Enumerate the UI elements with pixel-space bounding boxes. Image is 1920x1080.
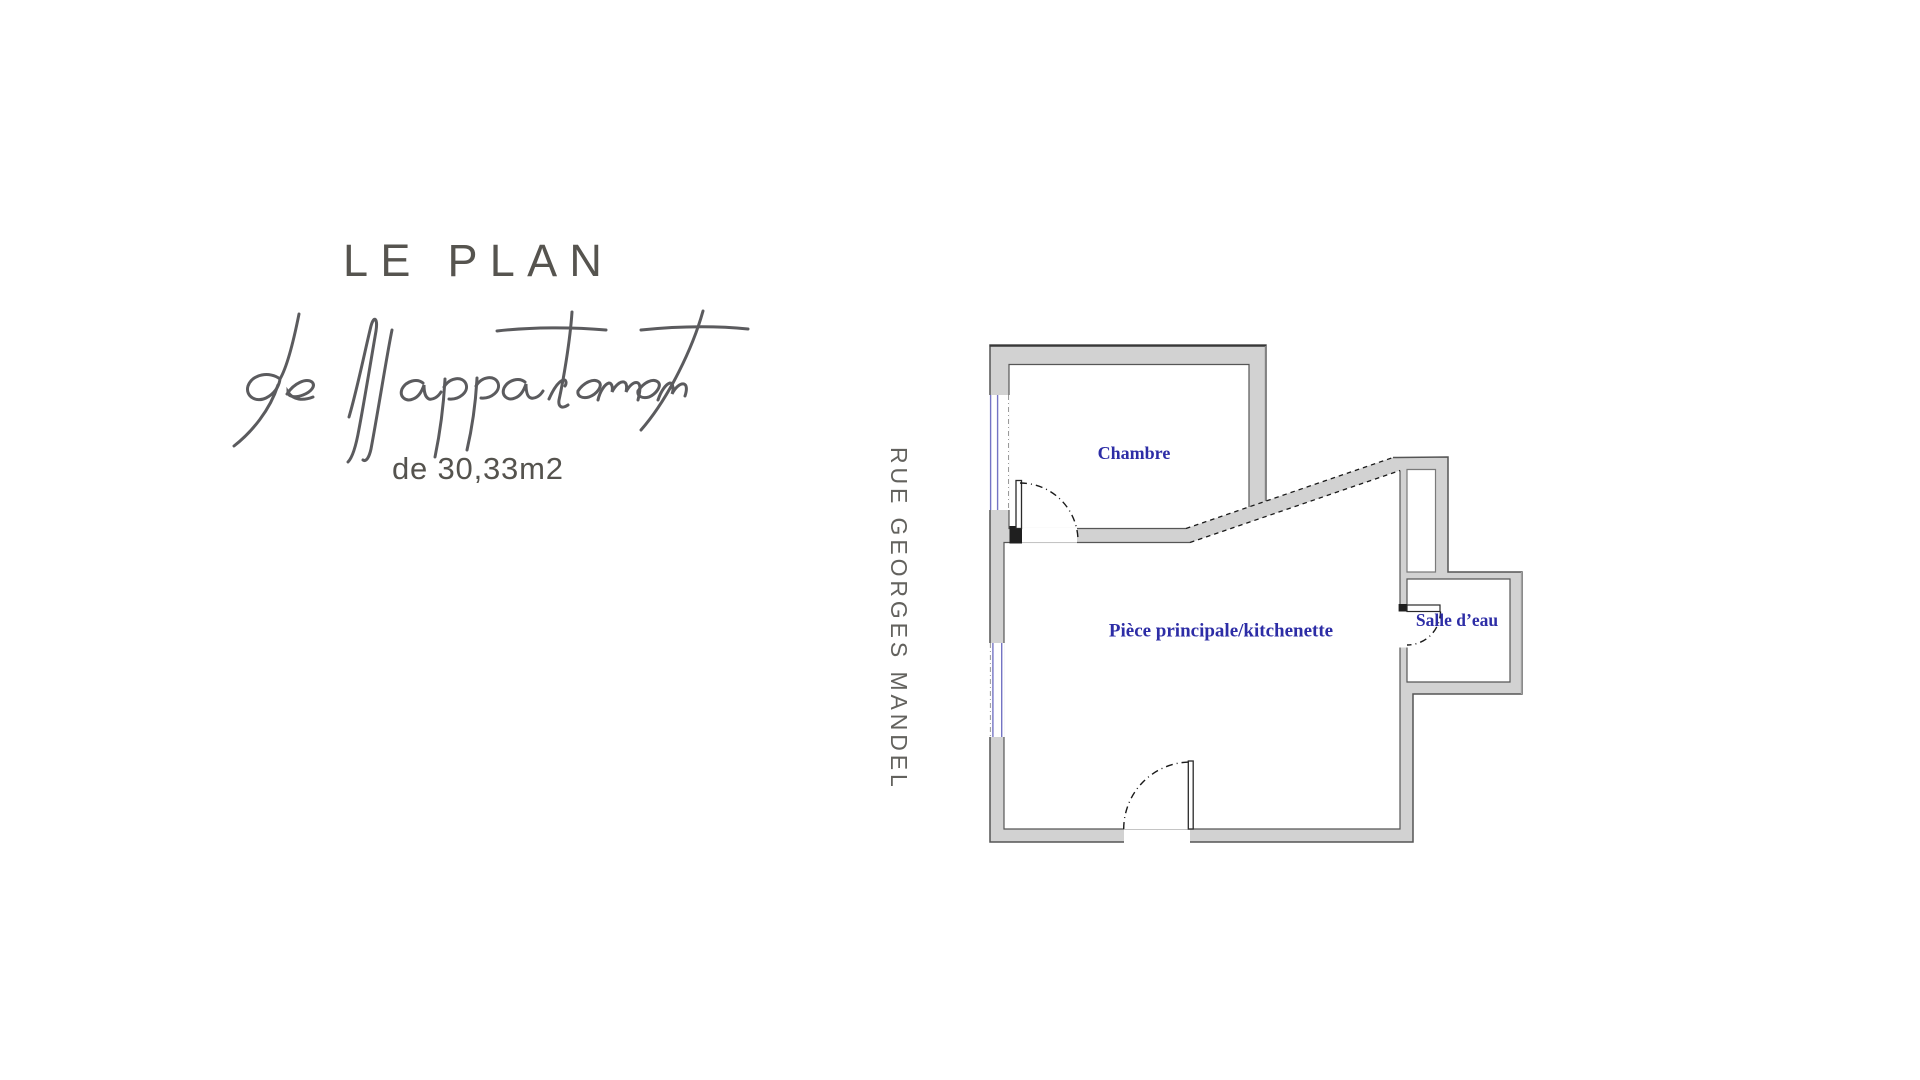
svg-text:Chambre: Chambre bbox=[1098, 443, 1171, 463]
svg-text:Pièce principale/kitchenette: Pièce principale/kitchenette bbox=[1109, 621, 1333, 642]
svg-text:Salle d’eau: Salle d’eau bbox=[1416, 610, 1498, 630]
